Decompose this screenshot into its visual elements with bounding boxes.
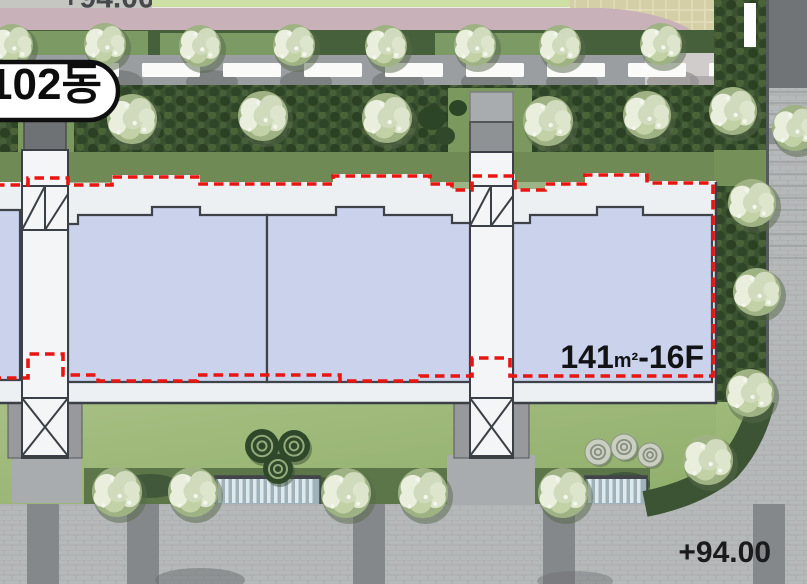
stair-core-1 [22, 150, 68, 458]
road-band [27, 504, 59, 584]
site-plan-canvas: +94.00 [0, 0, 807, 584]
grass-strip-east [714, 150, 772, 186]
unit-block-c [267, 207, 470, 382]
building-label-bubble: 102동 [0, 60, 118, 120]
unit-block-a [0, 210, 20, 380]
site-plan: +94.00 [0, 0, 807, 584]
elevation-label-bottom: +94.00 [678, 536, 771, 569]
unit-block-b [68, 207, 267, 382]
road-marker [744, 3, 756, 47]
water-feature [585, 476, 647, 506]
building-label: 102동 [0, 60, 102, 109]
field-strip [152, 0, 572, 8]
centerline-dash [223, 63, 281, 77]
water-feature [215, 476, 320, 506]
stair-core-2 [470, 152, 513, 458]
